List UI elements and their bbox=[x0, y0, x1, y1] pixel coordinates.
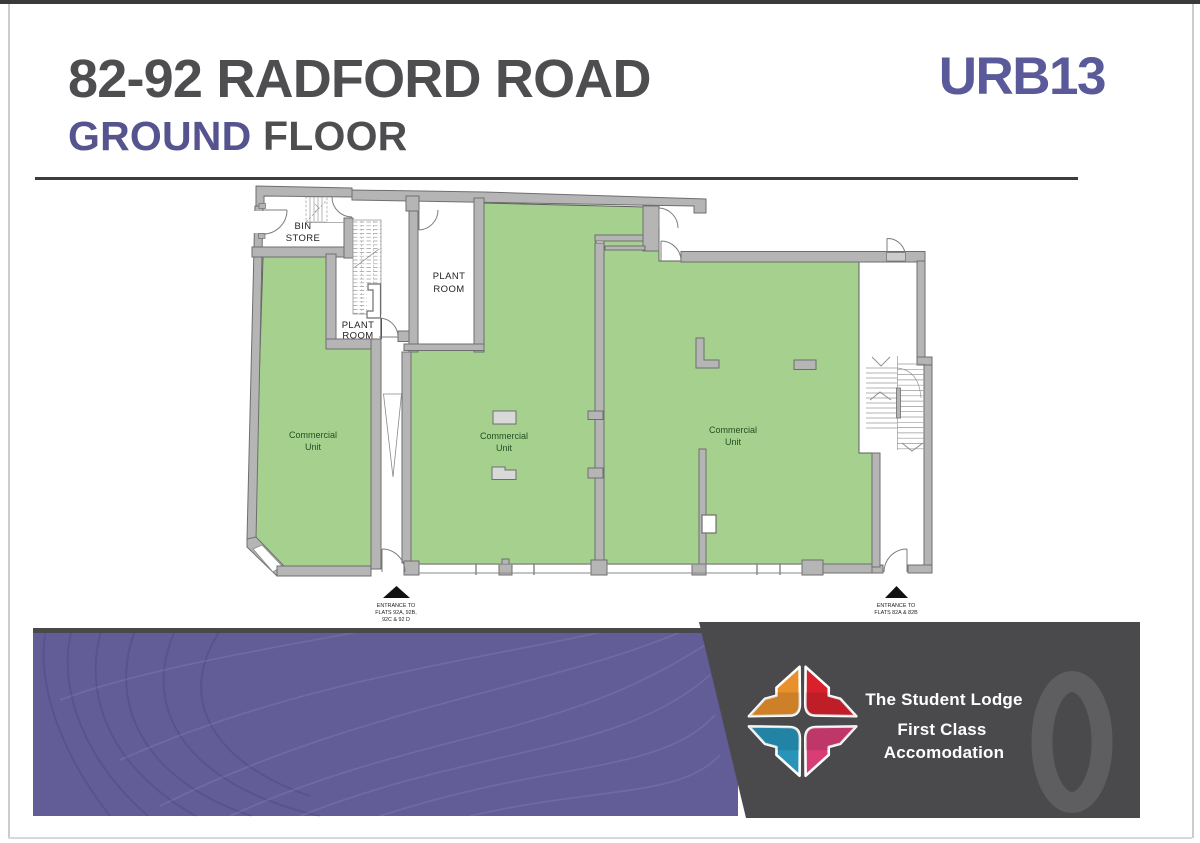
svg-text:ROOM: ROOM bbox=[342, 331, 373, 342]
svg-text:First Class: First Class bbox=[897, 720, 986, 739]
svg-text:Commercial: Commercial bbox=[480, 431, 528, 441]
svg-text:Commercial: Commercial bbox=[289, 430, 337, 440]
svg-text:FLATS 92A, 92B,: FLATS 92A, 92B, bbox=[375, 610, 417, 616]
svg-text:PLANT: PLANT bbox=[433, 271, 466, 282]
svg-text:92C & 92 D: 92C & 92 D bbox=[382, 617, 410, 623]
svg-text:ENTRANCE TO: ENTRANCE TO bbox=[377, 603, 415, 609]
svg-text:FLATS 82A & 82B: FLATS 82A & 82B bbox=[874, 610, 918, 616]
svg-text:STORE: STORE bbox=[286, 233, 321, 244]
svg-text:ENTRANCE TO: ENTRANCE TO bbox=[877, 603, 915, 609]
svg-text:PLANT: PLANT bbox=[342, 320, 375, 331]
svg-text:Unit: Unit bbox=[305, 442, 322, 452]
svg-text:The Student Lodge: The Student Lodge bbox=[865, 690, 1022, 709]
svg-text:BIN: BIN bbox=[294, 221, 311, 232]
svg-text:ROOM: ROOM bbox=[433, 284, 464, 295]
svg-text:Unit: Unit bbox=[496, 443, 513, 453]
svg-text:Accomodation: Accomodation bbox=[884, 743, 1004, 762]
svg-text:Commercial: Commercial bbox=[709, 425, 757, 435]
svg-text:Unit: Unit bbox=[725, 437, 742, 447]
